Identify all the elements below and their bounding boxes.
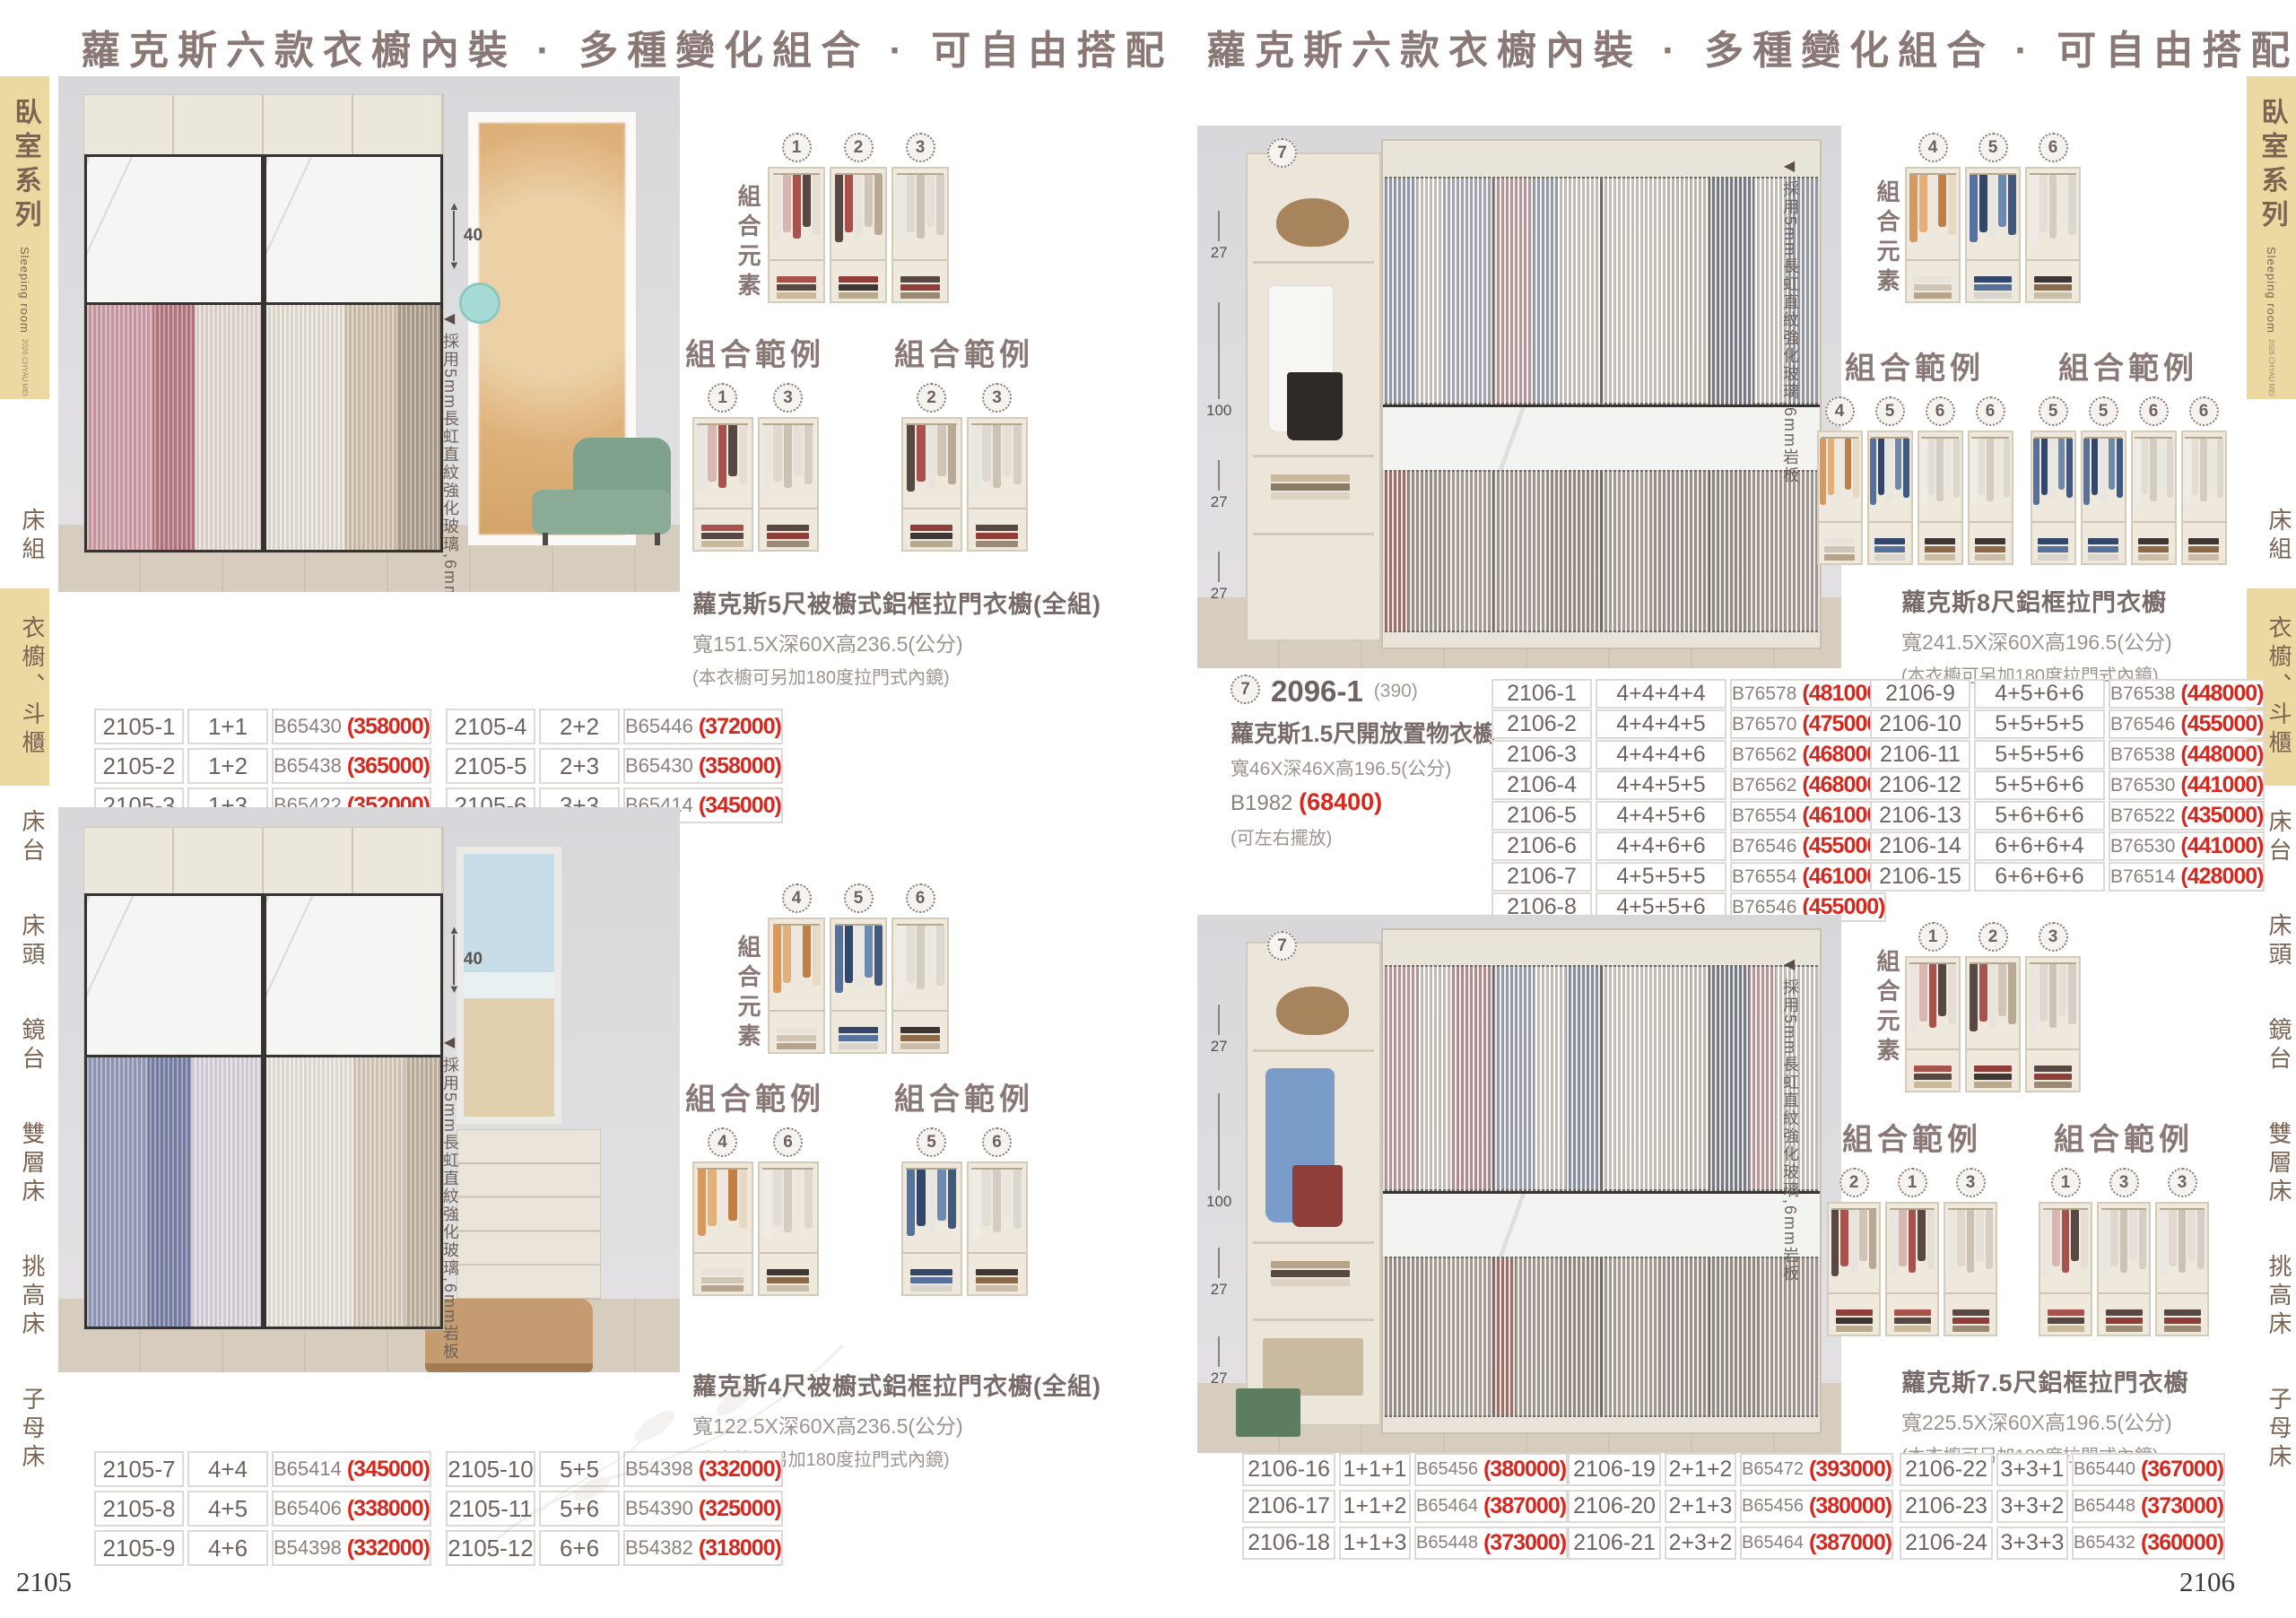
- sidebar-item[interactable]: 挑高床: [2247, 1231, 2296, 1363]
- shelf-unit-product-info: 7 2096-1 (390) 蘿克斯1.5尺開放置物衣櫥 寬46X深46X高19…: [1231, 674, 1518, 849]
- example-label: 組合範例: [1842, 1115, 1982, 1159]
- open-shelf-unit: [1246, 152, 1381, 641]
- unit-thumbnail: [2155, 1202, 2209, 1336]
- example-group: 組合範例 4566: [1812, 344, 2018, 565]
- price-value: (373000): [2141, 1493, 2223, 1519]
- marble-band: [1383, 404, 1821, 475]
- circled-number-4: 4: [1825, 396, 1855, 426]
- folded-stack: [770, 1010, 823, 1052]
- price-code: B76530: [2110, 775, 2175, 796]
- table-row: 2106-156+6+6+6B76514(428000): [1870, 862, 2229, 889]
- combination-cell: 5+6+6+6: [1974, 801, 2105, 831]
- model-code-cell: 2105-7: [94, 1451, 184, 1487]
- price-cell: B65456(380000): [1740, 1490, 1893, 1523]
- unit-row: 46: [692, 1127, 819, 1296]
- unit-thumbnail: [830, 918, 887, 1054]
- wardrobe-unit-3: 3: [2025, 922, 2081, 1092]
- price-code: B76530: [2110, 836, 2175, 857]
- folded-stack: [903, 508, 961, 550]
- shelf: [1253, 261, 1374, 264]
- wardrobe-unit-3: 3: [891, 133, 949, 303]
- price-value: (373000): [1483, 1530, 1566, 1556]
- wardrobe-unit-1: 1: [1905, 922, 1961, 1092]
- price-cell: B65406(338000): [272, 1491, 431, 1527]
- unit-row: 13: [692, 383, 819, 552]
- folded-stack: [969, 1252, 1026, 1294]
- wardrobe-unit-5: 5: [2031, 396, 2076, 565]
- price-table: 2105-11+1B65430(358000)2105-21+2B65438(3…: [94, 709, 417, 823]
- table-row: 2106-181+1+3B65448(373000): [1242, 1527, 1558, 1560]
- price-cell: B76570(475000): [1730, 709, 1886, 739]
- circled-number-7: 7: [1267, 931, 1297, 961]
- dimension-arrow: ▲▼: [448, 926, 460, 994]
- model-code-cell: 2106-24: [1900, 1527, 1993, 1560]
- wardrobe-unit-3: 3: [967, 383, 1028, 552]
- model-code-cell: 2106-19: [1568, 1453, 1661, 1486]
- folded-stack: [2083, 521, 2125, 563]
- unit-row: 123: [1905, 922, 2081, 1092]
- combination-cell: 3+3+2: [1996, 1490, 2068, 1523]
- combination-cell: 2+1+2: [1665, 1453, 1736, 1486]
- fluted-glass-panel: [1710, 965, 1820, 1191]
- series-title: 臥室系列: [5, 98, 45, 234]
- hanging-clothes: [2040, 1204, 2091, 1292]
- hanging-clothes: [1819, 432, 1861, 521]
- left-triangle-icon: ◀: [1784, 157, 1796, 175]
- sliding-doors: [84, 154, 443, 552]
- combination-cell: 1+1+1: [1339, 1453, 1411, 1486]
- price-value: (345000): [699, 793, 781, 819]
- hanging-clothes: [1919, 432, 1961, 521]
- glass-annotation-text: 採用5mm長虹直紋強化玻璃,6mm岩板: [1779, 180, 1802, 484]
- left-triangle-icon: ◀: [444, 1033, 457, 1051]
- unit-row: 133: [2039, 1168, 2209, 1336]
- unit-row: 123: [768, 133, 949, 303]
- wardrobe-unit-2: 2: [830, 133, 887, 303]
- folded-clothes: [1271, 1261, 1350, 1286]
- model-code-cell: 2105-2: [94, 748, 184, 784]
- wardrobe-unit-6: 6: [1968, 396, 2013, 565]
- model-code-cell: 2105-5: [446, 748, 535, 784]
- price-value: (358000): [347, 714, 430, 740]
- folded-stack: [1970, 521, 2012, 563]
- unit-thumbnail: [1817, 431, 1863, 565]
- upper-glass-doors: [1383, 177, 1821, 404]
- shelf: [1253, 1241, 1374, 1244]
- dimension-line: [1218, 1336, 1220, 1367]
- dimension-label: 27: [1211, 460, 1228, 514]
- elements-label: 組合元素: [1871, 949, 1904, 1067]
- product-size: 寬241.5X深60X高196.5(公分): [1901, 625, 2172, 656]
- example-label: 組合範例: [2054, 1115, 2194, 1159]
- table-row: 2106-161+1+1B65456(380000): [1242, 1453, 1558, 1486]
- sliding-door-wardrobe: [1381, 139, 1822, 649]
- circled-number-5: 5: [1875, 396, 1905, 426]
- marble-band: [1383, 1191, 1821, 1262]
- model-code-cell: 2106-6: [1492, 831, 1592, 861]
- hanging-clothes: [1887, 1204, 1937, 1292]
- hanging-clothes: [2099, 1204, 2149, 1292]
- sliding-door-wardrobe: [83, 94, 444, 553]
- unit-thumbnail: [2039, 1202, 2092, 1336]
- circled-number-1: 1: [1898, 1168, 1927, 1197]
- combination-cell: 4+4+4+5: [1596, 709, 1726, 739]
- circled-number-5: 5: [917, 1127, 946, 1157]
- sidebar-item[interactable]: 子母床: [2247, 1363, 2296, 1496]
- sidebar-item[interactable]: 床頭: [0, 890, 49, 994]
- unit-row: 23: [901, 383, 1028, 552]
- table-row: 2106-64+4+6+6B76546(455000): [1492, 831, 1850, 858]
- green-armchair: [532, 438, 671, 545]
- unit-row: 5566: [2031, 396, 2227, 565]
- folded-stack: [760, 1252, 817, 1294]
- price-code: B65432: [2074, 1533, 2135, 1553]
- table-row: 2106-94+5+6+6B76538(448000): [1870, 679, 2229, 706]
- model-code-cell: 2106-23: [1900, 1490, 1993, 1523]
- circled-number-3: 3: [982, 383, 1012, 413]
- price-code: B65430: [274, 715, 342, 738]
- table-row: 2106-74+5+5+5B76554(461000): [1492, 862, 1850, 889]
- price-value: (68400): [1299, 788, 1382, 815]
- dimension-value: 40: [464, 950, 483, 970]
- price-code: B65456: [1742, 1496, 1804, 1517]
- series-subtitle: Sleeping room: [2265, 247, 2278, 334]
- model-code-cell: 2106-17: [1242, 1490, 1335, 1523]
- price-code: B1982: [1231, 791, 1292, 815]
- price-cell: B76538(448000): [2109, 740, 2265, 770]
- dimension-label: 27: [1211, 552, 1228, 605]
- hanging-clothes: [2133, 432, 2175, 521]
- price-code: B76538: [2110, 744, 2175, 766]
- hanging-clothes: [969, 1163, 1026, 1252]
- hanging-clothes: [903, 1163, 961, 1252]
- sidebar-item[interactable]: 床組: [2247, 484, 2296, 588]
- folded-stack: [694, 508, 752, 550]
- product-note: (可左右擺放): [1231, 823, 1518, 849]
- table-row: 2106-223+3+1B65440(367000): [1900, 1453, 2221, 1486]
- product-info: 蘿克斯5尺被櫥式鋁框拉門衣櫥(全組) 寬151.5X深60X高236.5(公分)…: [692, 585, 1101, 689]
- sidebar-item[interactable]: 鏡台: [2247, 994, 2296, 1098]
- unit-thumbnail: [2025, 167, 2081, 303]
- combination-cell: 1+1+3: [1339, 1527, 1411, 1560]
- dimension-value: 40: [464, 226, 483, 246]
- unit-row: 456: [1905, 133, 2081, 303]
- price-value: (345000): [347, 1457, 430, 1483]
- sidebar-item[interactable]: 挑高床: [0, 1231, 49, 1363]
- combination-cell: 5+5+6+6: [1974, 770, 2105, 800]
- sidebar-item[interactable]: 雙層床: [2247, 1098, 2296, 1231]
- price-code: B65414: [274, 1457, 342, 1481]
- product-size: 寬151.5X深60X高236.5(公分): [692, 627, 1101, 657]
- hanging-clothes: [1945, 1204, 1996, 1292]
- dimension-label: 100: [1206, 1093, 1231, 1213]
- circled-number-3: 3: [773, 383, 803, 413]
- table-row: 2106-135+6+6+6B76522(435000): [1870, 801, 2229, 828]
- model-code-cell: 2106-18: [1242, 1527, 1335, 1560]
- example-group: 組合範例 213: [1813, 1115, 2011, 1336]
- model-code-cell: 2106-21: [1568, 1527, 1661, 1560]
- model-code-cell: 2106-4: [1492, 770, 1592, 800]
- product-info: 蘿克斯7.5尺鋁框拉門衣櫥 寬225.5X深60X高196.5(公分) (本衣櫥…: [1901, 1363, 2189, 1467]
- table-row: 2106-243+3+3B65432(360000): [1900, 1527, 2221, 1560]
- circled-number-1: 1: [708, 383, 737, 413]
- unit-thumbnail: [901, 417, 962, 552]
- sidebar-item[interactable]: 子母床: [0, 1363, 49, 1496]
- circled-number-5: 5: [1979, 133, 2008, 162]
- hanging-clothes: [760, 1163, 817, 1252]
- price-cell: B76554(461000): [1730, 801, 1886, 831]
- price-cell: B65472(393000): [1740, 1453, 1893, 1486]
- table-row: 2106-192+1+2B65472(393000): [1568, 1453, 1889, 1486]
- price-code: B65456: [1416, 1459, 1478, 1480]
- elements-label: 組合元素: [732, 184, 765, 302]
- folded-stack: [1945, 1292, 1996, 1335]
- price-code: B76522: [2110, 805, 2175, 827]
- circled-number-1: 1: [782, 133, 812, 162]
- product-code-note: (390): [1374, 681, 1418, 702]
- combination-cell: 6+6+6+4: [1974, 831, 2105, 861]
- example-label: 組合範例: [685, 1074, 825, 1118]
- circled-number-3: 3: [2039, 922, 2068, 952]
- page-title-left: 蘿克斯六款衣櫥內裝 · 多種變化組合 · 可自由搭配: [81, 25, 1103, 77]
- price-cell: B65438(365000): [272, 748, 431, 784]
- price-table: 2106-223+3+1B65440(367000)2106-233+3+2B6…: [1900, 1453, 2221, 1560]
- series-title: 臥室系列: [2252, 98, 2292, 234]
- wardrobe-unit-2: 2: [1827, 1168, 1881, 1336]
- price-cell: B76530(441000): [2109, 831, 2265, 861]
- example-group: 組合範例 46: [665, 1074, 845, 1296]
- unit-thumbnail: [1944, 1202, 1997, 1336]
- glass-annotation: ◀ 採用5mm長虹直紋強化玻璃,6mm岩板: [1779, 955, 1802, 1283]
- dimension-line: [1218, 1005, 1220, 1035]
- fluted-glass-panel: [1710, 177, 1820, 404]
- example-group: 組合範例 23: [874, 330, 1054, 552]
- combination-cell: 4+6: [187, 1530, 268, 1566]
- product-size: 寬225.5X深60X高196.5(公分): [1901, 1405, 2189, 1436]
- circled-number-6: 6: [2139, 396, 2169, 426]
- sidebar-items: 床組衣櫥、斗櫃床台床頭鏡台雙層床挑高床子母床: [2247, 484, 2296, 1496]
- price-cell: B65446(372000): [623, 709, 783, 744]
- wardrobe-unit-6: 6: [967, 1127, 1028, 1296]
- price-cell: B76546(455000): [2109, 709, 2265, 739]
- table-row: 2106-14+4+4+4B76578(481000): [1492, 679, 1850, 706]
- product-photo-4ft-wardrobe: ▲▼ 40 ◀ 採用5mm長虹直紋強化玻璃,6mm岩板: [58, 807, 680, 1372]
- price-cell: B65430(358000): [623, 748, 783, 784]
- combination-cell: 3+3+1: [1996, 1453, 2068, 1486]
- table-row: 2105-42+2B65446(372000): [446, 709, 769, 744]
- model-code-cell: 2106-3: [1492, 740, 1592, 770]
- dimension-line: [1218, 1248, 1220, 1278]
- unit-thumbnail: [891, 167, 949, 303]
- example-group: 組合範例 56: [874, 1074, 1054, 1296]
- combination-cell: 1+1+2: [1339, 1490, 1411, 1523]
- drawer-chest: [457, 1129, 601, 1300]
- combination-cell: 3+3+3: [1996, 1527, 2068, 1560]
- example-label: 組合範例: [1845, 344, 1985, 387]
- price-value: (365000): [347, 753, 430, 779]
- hanging-clothes: [1967, 169, 2019, 259]
- price-code: B65448: [2074, 1496, 2135, 1517]
- price-code: B65446: [625, 715, 693, 738]
- combination-cell: 6+6+6+6: [1974, 862, 2105, 892]
- price-code: B76562: [1732, 775, 1796, 796]
- wardrobe-unit-6: 6: [758, 1127, 819, 1296]
- table-row: 2105-94+6B54398(332000): [94, 1530, 417, 1566]
- unit-thumbnail: [692, 1161, 753, 1296]
- product-note: (本衣櫥可另加180度拉門式內鏡): [692, 663, 1101, 689]
- circled-number-2: 2: [844, 133, 874, 162]
- wardrobe-unit-6: 6: [891, 883, 949, 1054]
- hanging-clothes: [969, 419, 1026, 508]
- marble-panel: [87, 157, 261, 305]
- folded-stack: [1907, 1048, 1959, 1091]
- price-value: (441000): [2180, 772, 2263, 798]
- product-size: 寬46X深46X高196.5(公分): [1231, 754, 1518, 781]
- circled-number-4: 4: [782, 883, 812, 913]
- circled-number-2: 2: [917, 383, 946, 413]
- sidebar-item[interactable]: 鏡台: [0, 994, 49, 1098]
- sidebar-item[interactable]: 雙層床: [0, 1098, 49, 1231]
- wardrobe-unit-5: 5: [1965, 133, 2021, 303]
- wardrobe-unit-3: 3: [1944, 1168, 1997, 1336]
- table-row: 2106-105+5+5+5B76546(455000): [1870, 709, 2229, 736]
- folded-stack: [2183, 521, 2225, 563]
- element-units-row: 123: [768, 133, 949, 303]
- table-row: 2106-233+3+2B65448(373000): [1900, 1490, 2221, 1523]
- green-storage-box: [1236, 1388, 1300, 1437]
- price-cell: B65432(360000): [2072, 1527, 2225, 1560]
- left-triangle-icon: ◀: [444, 309, 457, 327]
- circled-number-2: 2: [1839, 1168, 1869, 1197]
- folded-stack: [893, 1010, 947, 1052]
- hat: [1276, 198, 1349, 247]
- hanging-clothes: [2183, 432, 2225, 521]
- unit-row: 56: [901, 1127, 1028, 1296]
- folded-stack: [1819, 521, 1861, 563]
- wardrobe-unit-5: 5: [830, 883, 887, 1054]
- model-code-cell: 2106-20: [1568, 1490, 1661, 1523]
- table-row: 2105-11+1B65430(358000): [94, 709, 417, 744]
- hanging-clothes: [2083, 432, 2125, 521]
- page-number-right: 2106: [2179, 1566, 2235, 1598]
- fluted-glass-panel: [1710, 1257, 1820, 1417]
- element-units-row: 456: [768, 883, 949, 1054]
- circled-number-7: 7: [1231, 674, 1260, 704]
- shelf: [1253, 1318, 1374, 1321]
- dimension-column: 271002727: [1206, 1005, 1231, 1390]
- model-code-cell: 2106-14: [1870, 831, 1970, 861]
- wardrobe-unit-6: 6: [1918, 396, 1963, 565]
- unit-thumbnail: [830, 167, 887, 303]
- sliding-door-wardrobe: [83, 827, 444, 1330]
- circled-number-2: 2: [1979, 922, 2008, 952]
- dimension-arrow: ▲▼: [448, 202, 460, 270]
- hanging-clothes: [1967, 958, 2019, 1048]
- folded-stack: [2040, 1292, 2091, 1335]
- price-value: (360000): [2141, 1530, 2223, 1556]
- sidebar-item[interactable]: 衣櫥、斗櫃: [0, 588, 49, 786]
- catalog-spread: 蘿克斯六款衣櫥內裝 · 多種變化組合 · 可自由搭配 蘿克斯六款衣櫥內裝 · 多…: [0, 0, 2296, 1618]
- combination-cell: 4+5+5+5: [1596, 862, 1726, 892]
- price-value: (332000): [347, 1535, 430, 1561]
- circled-number-3: 3: [906, 133, 935, 162]
- dimension-label: 27: [1211, 211, 1228, 265]
- product-name: 蘿克斯7.5尺鋁框拉門衣櫥: [1901, 1363, 2189, 1398]
- left-triangle-icon: ◀: [1784, 955, 1796, 973]
- sidebar-item[interactable]: 床台: [0, 786, 49, 890]
- wardrobe-unit-1: 1: [2039, 1168, 2092, 1336]
- elements-label: 組合元素: [1871, 179, 1904, 298]
- circled-number-6: 6: [982, 1127, 1012, 1157]
- combination-cell: 4+5: [187, 1491, 268, 1527]
- wardrobe-unit-2: 2: [1965, 922, 2021, 1092]
- combination-cell: 5+5+5+5: [1974, 709, 2105, 739]
- price-table: 2106-192+1+2B65472(393000)2106-202+1+3B6…: [1568, 1453, 1889, 1560]
- unit-thumbnail: [1918, 431, 1963, 565]
- lower-glass-doors: [1383, 1257, 1821, 1417]
- series-block: 臥室系列 Sleeping room 2026 CHYAU MEI: [2247, 76, 2296, 399]
- sliding-doors: [84, 893, 443, 1329]
- price-code: B65430: [625, 754, 693, 778]
- circled-number-5: 5: [2089, 396, 2118, 426]
- folded-stack: [903, 1252, 961, 1294]
- unit-thumbnail: [1867, 431, 1913, 565]
- price-value: (448000): [2180, 742, 2263, 768]
- model-code-cell: 2106-16: [1242, 1453, 1335, 1486]
- product-name: 蘿克斯1.5尺開放置物衣櫥: [1231, 716, 1518, 749]
- armchair-seat: [532, 490, 671, 535]
- example-label: 組合範例: [894, 1074, 1034, 1118]
- price-value: (372000): [699, 714, 781, 740]
- dimension-label: 100: [1206, 302, 1231, 422]
- glass-annotation-text: 採用5mm長虹直紋強化玻璃,6mm岩板: [1779, 979, 1802, 1283]
- product-info: 蘿克斯8尺鋁框拉門衣櫥 寬241.5X深60X高196.5(公分) (本衣櫥可另…: [1901, 583, 2172, 687]
- hanging-clothes: [694, 419, 752, 508]
- price-cell: B65448(373000): [1414, 1527, 1568, 1560]
- price-value: (448000): [2180, 681, 2263, 707]
- price-code: B76546: [1732, 836, 1796, 857]
- combination-cell: 2+2: [539, 709, 620, 744]
- glass-annotation: ◀ 採用5mm長虹直紋強化玻璃,6mm岩板: [1779, 157, 1802, 484]
- sidebar-item[interactable]: 床頭: [2247, 890, 2296, 994]
- product-name: 蘿克斯5尺被櫥式鋁框拉門衣櫥(全組): [692, 585, 1101, 620]
- unit-thumbnail: [2097, 1202, 2151, 1336]
- model-code-cell: 2106-2: [1492, 709, 1592, 739]
- sliding-door-wardrobe: [1381, 928, 1822, 1434]
- unit-thumbnail: [2131, 431, 2177, 565]
- price-value: (441000): [2180, 833, 2263, 859]
- unit-thumbnail: [1968, 431, 2013, 565]
- price-value: (435000): [2180, 803, 2263, 829]
- sidebar-item[interactable]: 床組: [0, 484, 49, 588]
- combination-cell: 2+1+3: [1665, 1490, 1736, 1523]
- unit-thumbnail: [901, 1161, 962, 1296]
- price-cell: B76530(441000): [2109, 770, 2265, 800]
- folded-stack: [969, 508, 1026, 550]
- hat: [1276, 987, 1349, 1035]
- circled-number-1: 1: [1918, 922, 1948, 952]
- dimension-column: 271002727: [1206, 211, 1231, 605]
- table-row: 2106-125+5+6+6B76530(441000): [1870, 770, 2229, 797]
- dimension-label: 27: [1211, 1248, 1228, 1301]
- unit-thumbnail: [2031, 431, 2076, 565]
- shelf: [1253, 1049, 1374, 1052]
- circled-number-3: 3: [2168, 1168, 2197, 1197]
- dimension-line: [1218, 552, 1220, 582]
- price-value: (387000): [1483, 1493, 1566, 1519]
- circled-number-3: 3: [1956, 1168, 1986, 1197]
- unit-thumbnail: [891, 918, 949, 1054]
